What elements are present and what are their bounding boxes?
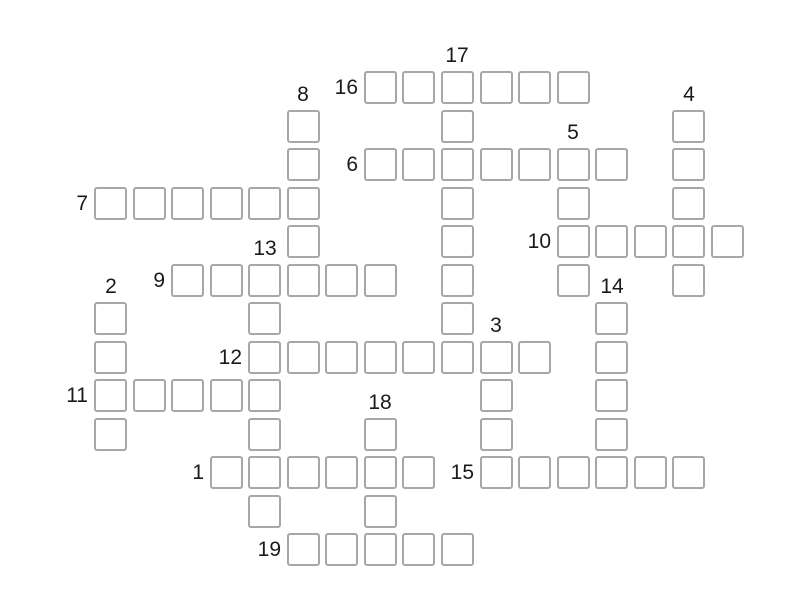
crossword-cell[interactable] [672,264,705,297]
crossword-cell[interactable] [480,148,513,181]
crossword-cell[interactable] [441,187,474,220]
crossword-board: 16178465710913214123111811519 [0,0,800,600]
crossword-cell[interactable] [287,110,320,143]
crossword-cell[interactable] [672,148,705,181]
crossword-cell[interactable] [557,264,590,297]
crossword-cell[interactable] [441,225,474,258]
crossword-cell[interactable] [480,418,513,451]
crossword-cell[interactable] [325,264,358,297]
crossword-cell[interactable] [248,302,281,335]
crossword-cell[interactable] [557,71,590,104]
crossword-cell[interactable] [441,302,474,335]
crossword-cell[interactable] [595,225,628,258]
crossword-cell[interactable] [364,71,397,104]
crossword-cell[interactable] [287,341,320,374]
crossword-cell[interactable] [441,110,474,143]
clue-number-label: 6 [314,153,358,177]
crossword-cell[interactable] [595,456,628,489]
crossword-cell[interactable] [364,456,397,489]
crossword-cell[interactable] [133,379,166,412]
crossword-cell[interactable] [94,341,127,374]
crossword-cell[interactable] [210,379,243,412]
crossword-cell[interactable] [441,264,474,297]
crossword-cell[interactable] [518,148,551,181]
clue-number-label: 11 [44,384,88,408]
clue-number-label: 5 [551,121,595,145]
crossword-cell[interactable] [94,418,127,451]
crossword-cell[interactable] [364,264,397,297]
crossword-cell[interactable] [557,456,590,489]
crossword-cell[interactable] [634,456,667,489]
crossword-cell[interactable] [402,533,435,566]
crossword-cell[interactable] [248,418,281,451]
clue-number-label: 17 [435,44,479,68]
crossword-cell[interactable] [364,533,397,566]
crossword-cell[interactable] [287,533,320,566]
clue-number-label: 15 [430,461,474,485]
crossword-cell[interactable] [210,264,243,297]
crossword-cell[interactable] [634,225,667,258]
crossword-cell[interactable] [94,187,127,220]
crossword-cell[interactable] [595,418,628,451]
crossword-cell[interactable] [287,264,320,297]
crossword-cell[interactable] [94,379,127,412]
clue-number-label: 14 [590,275,634,299]
crossword-cell[interactable] [402,148,435,181]
crossword-cell[interactable] [711,225,744,258]
crossword-cell[interactable] [480,379,513,412]
crossword-cell[interactable] [364,341,397,374]
clue-number-label: 3 [474,314,518,338]
crossword-cell[interactable] [518,456,551,489]
crossword-cell[interactable] [595,148,628,181]
crossword-cell[interactable] [210,456,243,489]
crossword-cell[interactable] [248,379,281,412]
clue-number-label: 19 [237,538,281,562]
crossword-cell[interactable] [672,110,705,143]
crossword-cell[interactable] [248,341,281,374]
crossword-cell[interactable] [557,148,590,181]
clue-number-label: 1 [160,461,204,485]
crossword-cell[interactable] [210,187,243,220]
crossword-cell[interactable] [248,187,281,220]
crossword-cell[interactable] [171,379,204,412]
crossword-cell[interactable] [325,456,358,489]
clue-number-label: 2 [89,275,133,299]
crossword-cell[interactable] [595,379,628,412]
crossword-cell[interactable] [441,341,474,374]
clue-number-label: 13 [243,237,287,261]
crossword-cell[interactable] [325,533,358,566]
crossword-cell[interactable] [402,71,435,104]
clue-number-label: 18 [358,391,402,415]
crossword-cell[interactable] [441,533,474,566]
clue-number-label: 8 [281,83,325,107]
crossword-cell[interactable] [518,71,551,104]
crossword-cell[interactable] [402,341,435,374]
crossword-cell[interactable] [248,264,281,297]
crossword-cell[interactable] [518,341,551,374]
crossword-cell[interactable] [364,495,397,528]
crossword-cell[interactable] [171,264,204,297]
crossword-cell[interactable] [557,187,590,220]
crossword-cell[interactable] [480,456,513,489]
crossword-cell[interactable] [557,225,590,258]
crossword-cell[interactable] [441,148,474,181]
clue-number-label: 7 [44,192,88,216]
crossword-cell[interactable] [133,187,166,220]
crossword-cell[interactable] [248,495,281,528]
crossword-cell[interactable] [364,148,397,181]
crossword-cell[interactable] [595,302,628,335]
crossword-cell[interactable] [672,225,705,258]
crossword-cell[interactable] [287,456,320,489]
crossword-cell[interactable] [94,302,127,335]
crossword-cell[interactable] [595,341,628,374]
crossword-cell[interactable] [325,341,358,374]
crossword-cell[interactable] [672,456,705,489]
crossword-cell[interactable] [171,187,204,220]
crossword-cell[interactable] [364,418,397,451]
crossword-cell[interactable] [480,71,513,104]
crossword-cell[interactable] [287,225,320,258]
clue-number-label: 4 [667,83,711,107]
crossword-cell[interactable] [672,187,705,220]
clue-number-label: 12 [198,346,242,370]
crossword-cell[interactable] [480,341,513,374]
crossword-cell[interactable] [287,187,320,220]
crossword-cell[interactable] [441,71,474,104]
clue-number-label: 10 [507,230,551,254]
crossword-cell[interactable] [248,456,281,489]
